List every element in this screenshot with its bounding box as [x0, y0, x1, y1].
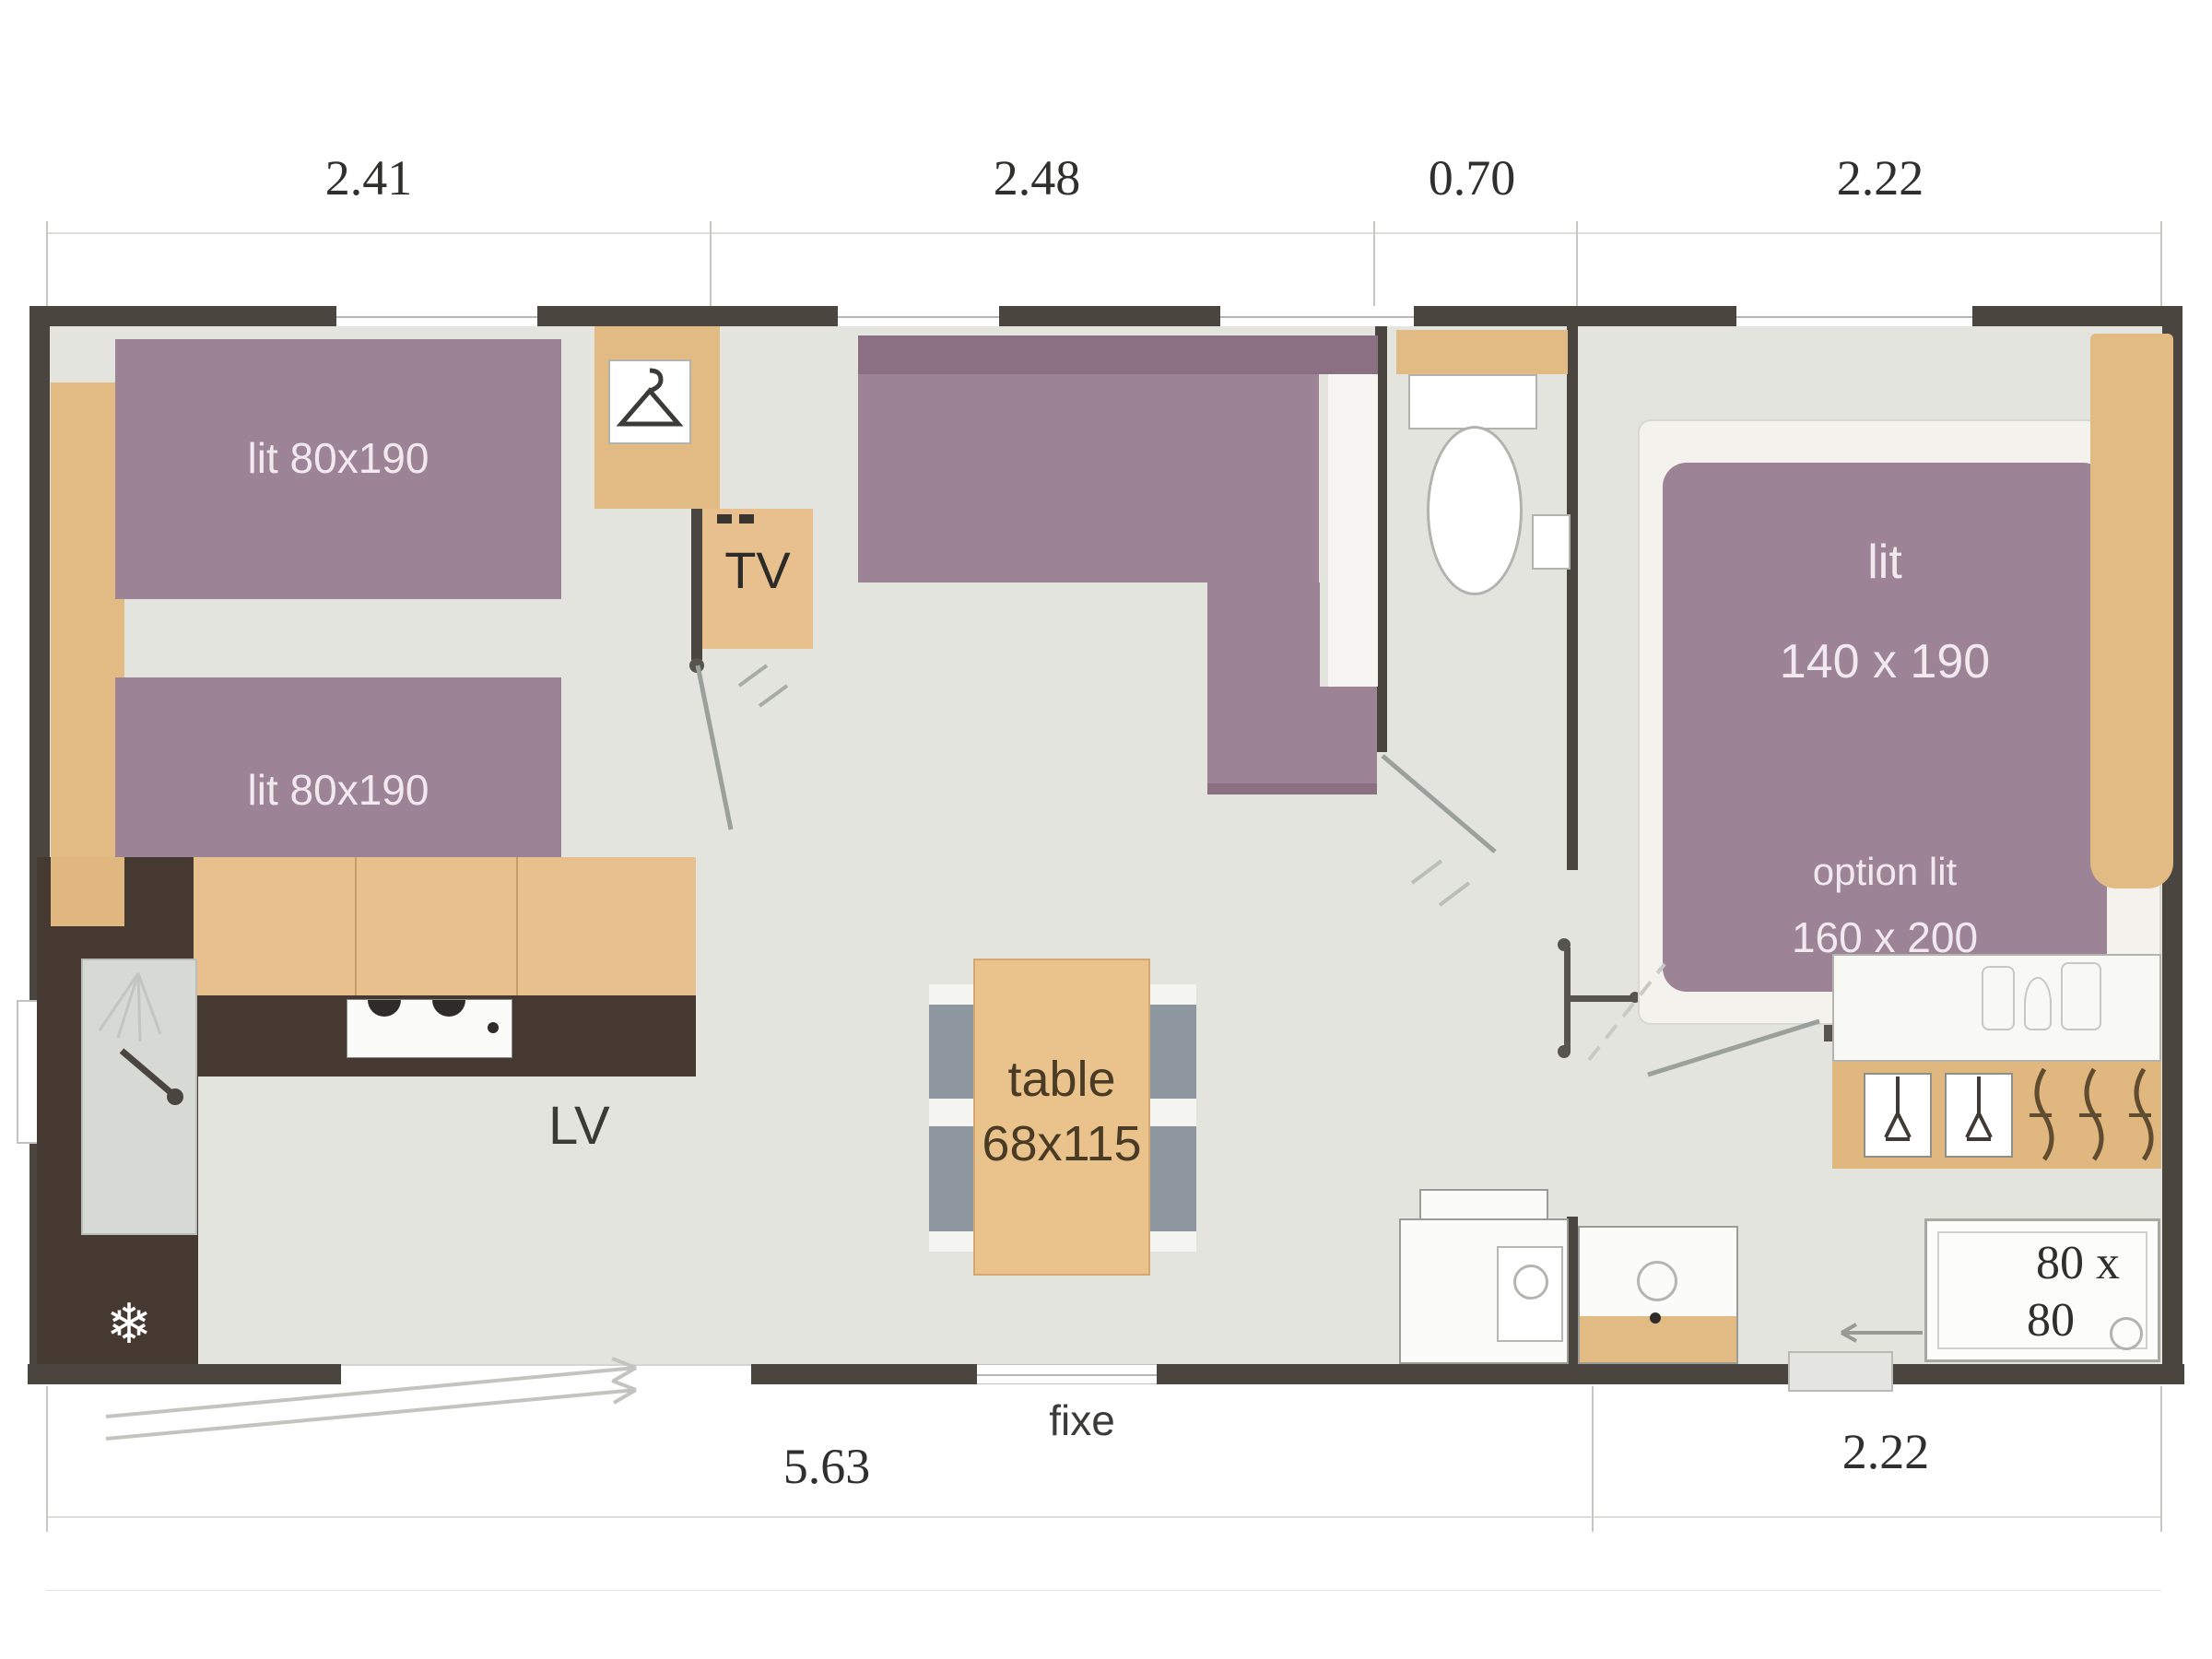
top-dimension-line — [46, 232, 2161, 234]
bedroom2-door-leaf — [1571, 995, 1635, 1002]
shower-tray: 80 x 80 — [1924, 1218, 2160, 1362]
wall-top-segment — [999, 306, 1220, 326]
sofa-side-shelf — [1328, 374, 1378, 687]
wall-bottom-segment — [751, 1364, 977, 1384]
hanger-icon — [612, 363, 688, 441]
toilet-bowl — [1427, 426, 1523, 595]
dimension-tick — [2160, 221, 2162, 306]
heater-ring-icon — [1513, 1265, 1548, 1300]
window-top-4 — [1736, 306, 1972, 326]
window-bathroom — [1788, 1351, 1893, 1392]
dimension-tick — [1576, 221, 1578, 306]
tv-label: TV — [702, 540, 813, 600]
dimension-tick — [1592, 1386, 1594, 1532]
bedroom1-door-hinge — [689, 658, 704, 673]
dishwasher-label: LV — [548, 1095, 610, 1157]
dim-top-4: 2.22 — [1837, 149, 1924, 206]
tv-cabinet: TV — [702, 509, 813, 649]
dim-top-2: 2.48 — [994, 149, 1081, 206]
window-fixe — [977, 1364, 1157, 1384]
bedroom2-door-hinge — [1558, 1045, 1571, 1058]
dim-top-3: 0.70 — [1429, 149, 1516, 206]
wall-top-segment — [1414, 306, 1736, 326]
sofa-back — [858, 335, 1378, 374]
tv-mark — [739, 514, 754, 524]
burner-icon — [368, 1000, 401, 1017]
window-top-2 — [838, 306, 999, 326]
worktop-seam — [516, 857, 518, 995]
toiletries-sketch — [2024, 977, 2052, 1030]
bed-double: lit 140 x 190 option lit 160 x 200 — [1663, 463, 2107, 992]
bed-headboard-right — [2090, 334, 2173, 888]
bedroom2-door-post — [1564, 947, 1571, 1051]
dimension-tick — [1373, 221, 1375, 306]
toiletries-sketch — [1982, 966, 2015, 1030]
bed-double-label: lit — [1663, 535, 2107, 590]
dimension-tick — [2160, 1386, 2162, 1532]
table-size-label: 68x115 — [975, 1115, 1148, 1172]
shower-size-line2: 80 — [2027, 1293, 2075, 1347]
washer-plinth — [1580, 1316, 1736, 1362]
washer-dot — [1650, 1312, 1661, 1324]
bottom-dimension-line-2 — [46, 1590, 2161, 1591]
wall-wc-right — [1567, 326, 1578, 870]
window-top-1 — [336, 306, 537, 326]
bottom-dimension-line — [46, 1516, 2161, 1518]
hob-knob — [488, 1022, 499, 1033]
worktop-seam — [355, 857, 357, 995]
wc-shelf — [1396, 330, 1568, 374]
dim-top-1: 2.41 — [325, 149, 413, 206]
faucet-icon — [1945, 1073, 2013, 1158]
bed-headboard-left — [51, 382, 124, 928]
wall-bottom-segment — [1893, 1364, 2184, 1384]
faucet-icon — [1864, 1073, 1932, 1158]
wall-top-segment — [537, 306, 838, 326]
bed-option-label: option lit — [1663, 850, 2107, 894]
tv-mark — [717, 514, 732, 524]
dim-bottom-left: 5.63 — [783, 1438, 871, 1495]
kitchen-sink — [81, 959, 197, 1235]
dimension-tick — [46, 221, 48, 306]
bed-double-size: 140 x 190 — [1663, 634, 2107, 689]
dimension-tick — [710, 221, 712, 306]
water-heater-lid — [1419, 1189, 1548, 1220]
sofa-chaise-step — [1320, 687, 1377, 794]
burner-icon — [432, 1000, 465, 1017]
shower-drain-icon — [2110, 1317, 2143, 1350]
window-top-3 — [1220, 306, 1414, 326]
water-heater — [1399, 1218, 1569, 1364]
wall-top-segment — [1972, 306, 2183, 326]
toiletries-sketch — [2061, 962, 2101, 1030]
wall-top-segment — [29, 306, 336, 326]
dining-table: table 68x115 — [973, 959, 1150, 1276]
bed-single-2: lit 80x190 — [115, 677, 561, 858]
wall-bottom-segment — [28, 1364, 341, 1384]
bed-single-1-label: lit 80x190 — [115, 433, 561, 483]
dim-bottom-right: 2.22 — [1842, 1423, 1930, 1480]
sofa-chaise — [1207, 582, 1320, 794]
shower-size-line1: 80 x — [2036, 1236, 2120, 1290]
washer-ring-icon — [1637, 1261, 1677, 1301]
dining-bench-right — [1150, 984, 1196, 1252]
bed-single-2-label: lit 80x190 — [115, 765, 561, 815]
floor-plan: 2.41 2.48 0.70 2.22 lit 80x190 lit 80x19… — [0, 0, 2212, 1659]
entrance-opening — [341, 1364, 751, 1366]
wall-bottom-segment — [1157, 1364, 1788, 1384]
towel-radiator-icon — [2026, 1065, 2160, 1163]
toilet-paper-holder — [1532, 514, 1571, 570]
toilet-tank — [1408, 374, 1537, 429]
washing-machine — [1578, 1226, 1738, 1364]
hob — [347, 999, 512, 1058]
bed-single-1: lit 80x190 — [115, 339, 561, 599]
dining-bench-left — [929, 984, 975, 1252]
dimension-tick — [46, 1386, 48, 1532]
sofa-seat — [858, 374, 1319, 582]
fixe-window-label: fixe — [1049, 1395, 1115, 1445]
sofa-chaise-edge — [1207, 783, 1377, 794]
kitchen-worktop — [194, 857, 696, 995]
bedroom2-door-hinge — [1558, 938, 1571, 951]
fridge-snowflake-icon: ❄ — [96, 1292, 162, 1357]
bed-headboard-left-lower — [51, 857, 124, 926]
table-label: table — [975, 1051, 1148, 1108]
